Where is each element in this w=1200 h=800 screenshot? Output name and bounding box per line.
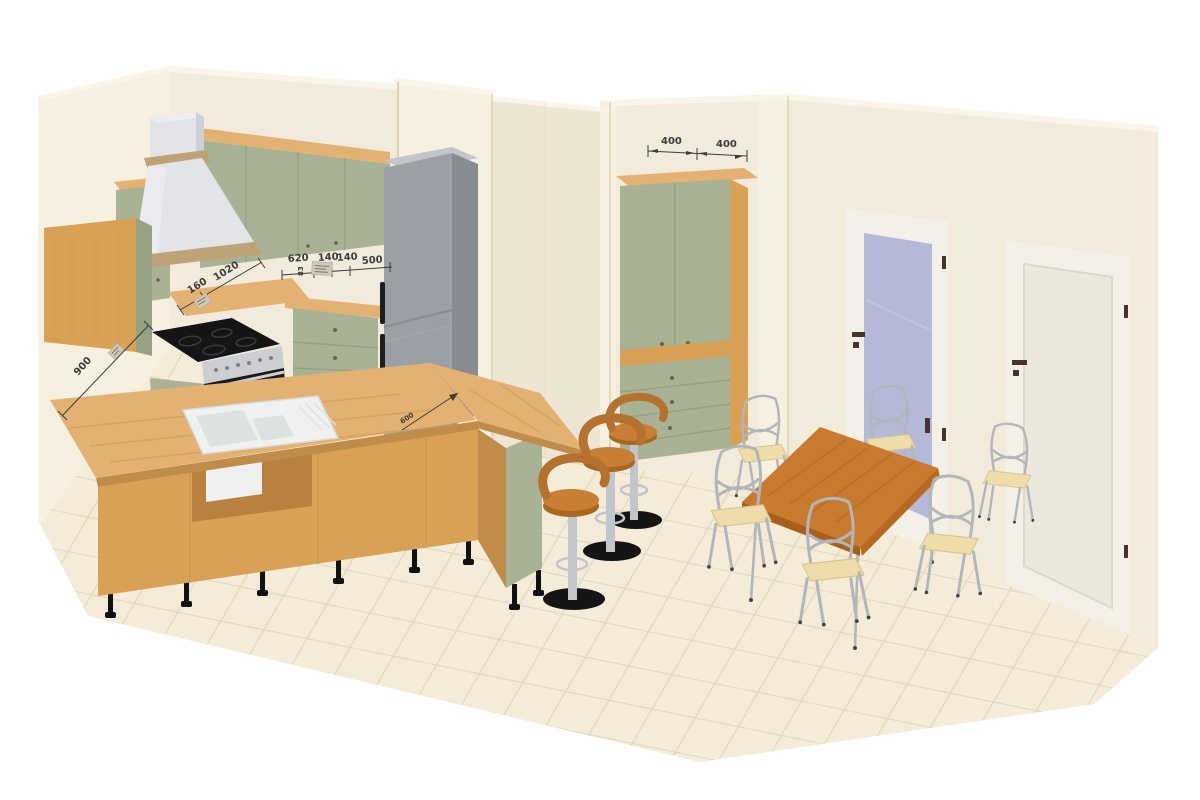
fridge-handle xyxy=(380,334,385,370)
dim-label: 140 xyxy=(336,252,358,264)
door-hinge xyxy=(942,256,946,269)
door-handle xyxy=(852,332,865,337)
fridge-handle xyxy=(380,282,385,324)
door-panel xyxy=(1024,264,1112,608)
dim-label: 400 xyxy=(716,139,737,150)
upper-cabinet-left-wall xyxy=(44,218,152,356)
dim-label: 400 xyxy=(661,136,682,147)
cabinet-wood-side xyxy=(44,218,136,352)
dim-label: 83 xyxy=(297,266,305,276)
door-hinge xyxy=(942,428,946,441)
door-hinge xyxy=(1124,305,1128,318)
dim-label: 500 xyxy=(361,255,383,267)
wall-pillar-right-of-pantry xyxy=(758,94,790,478)
kitchen-3d-render: 400 400 620 140 140 500 83 160 1020 xyxy=(0,0,1200,800)
peninsula-end-panel xyxy=(506,433,542,588)
scene-canvas: 400 400 620 140 140 500 83 160 1020 xyxy=(0,0,1200,800)
micro-tag xyxy=(312,261,333,275)
dim-label: 620 xyxy=(287,253,309,265)
door-hinge xyxy=(1124,545,1128,558)
wall-outlet xyxy=(925,418,930,433)
pantry-cabinet xyxy=(616,168,758,462)
door-handle xyxy=(1012,360,1027,365)
